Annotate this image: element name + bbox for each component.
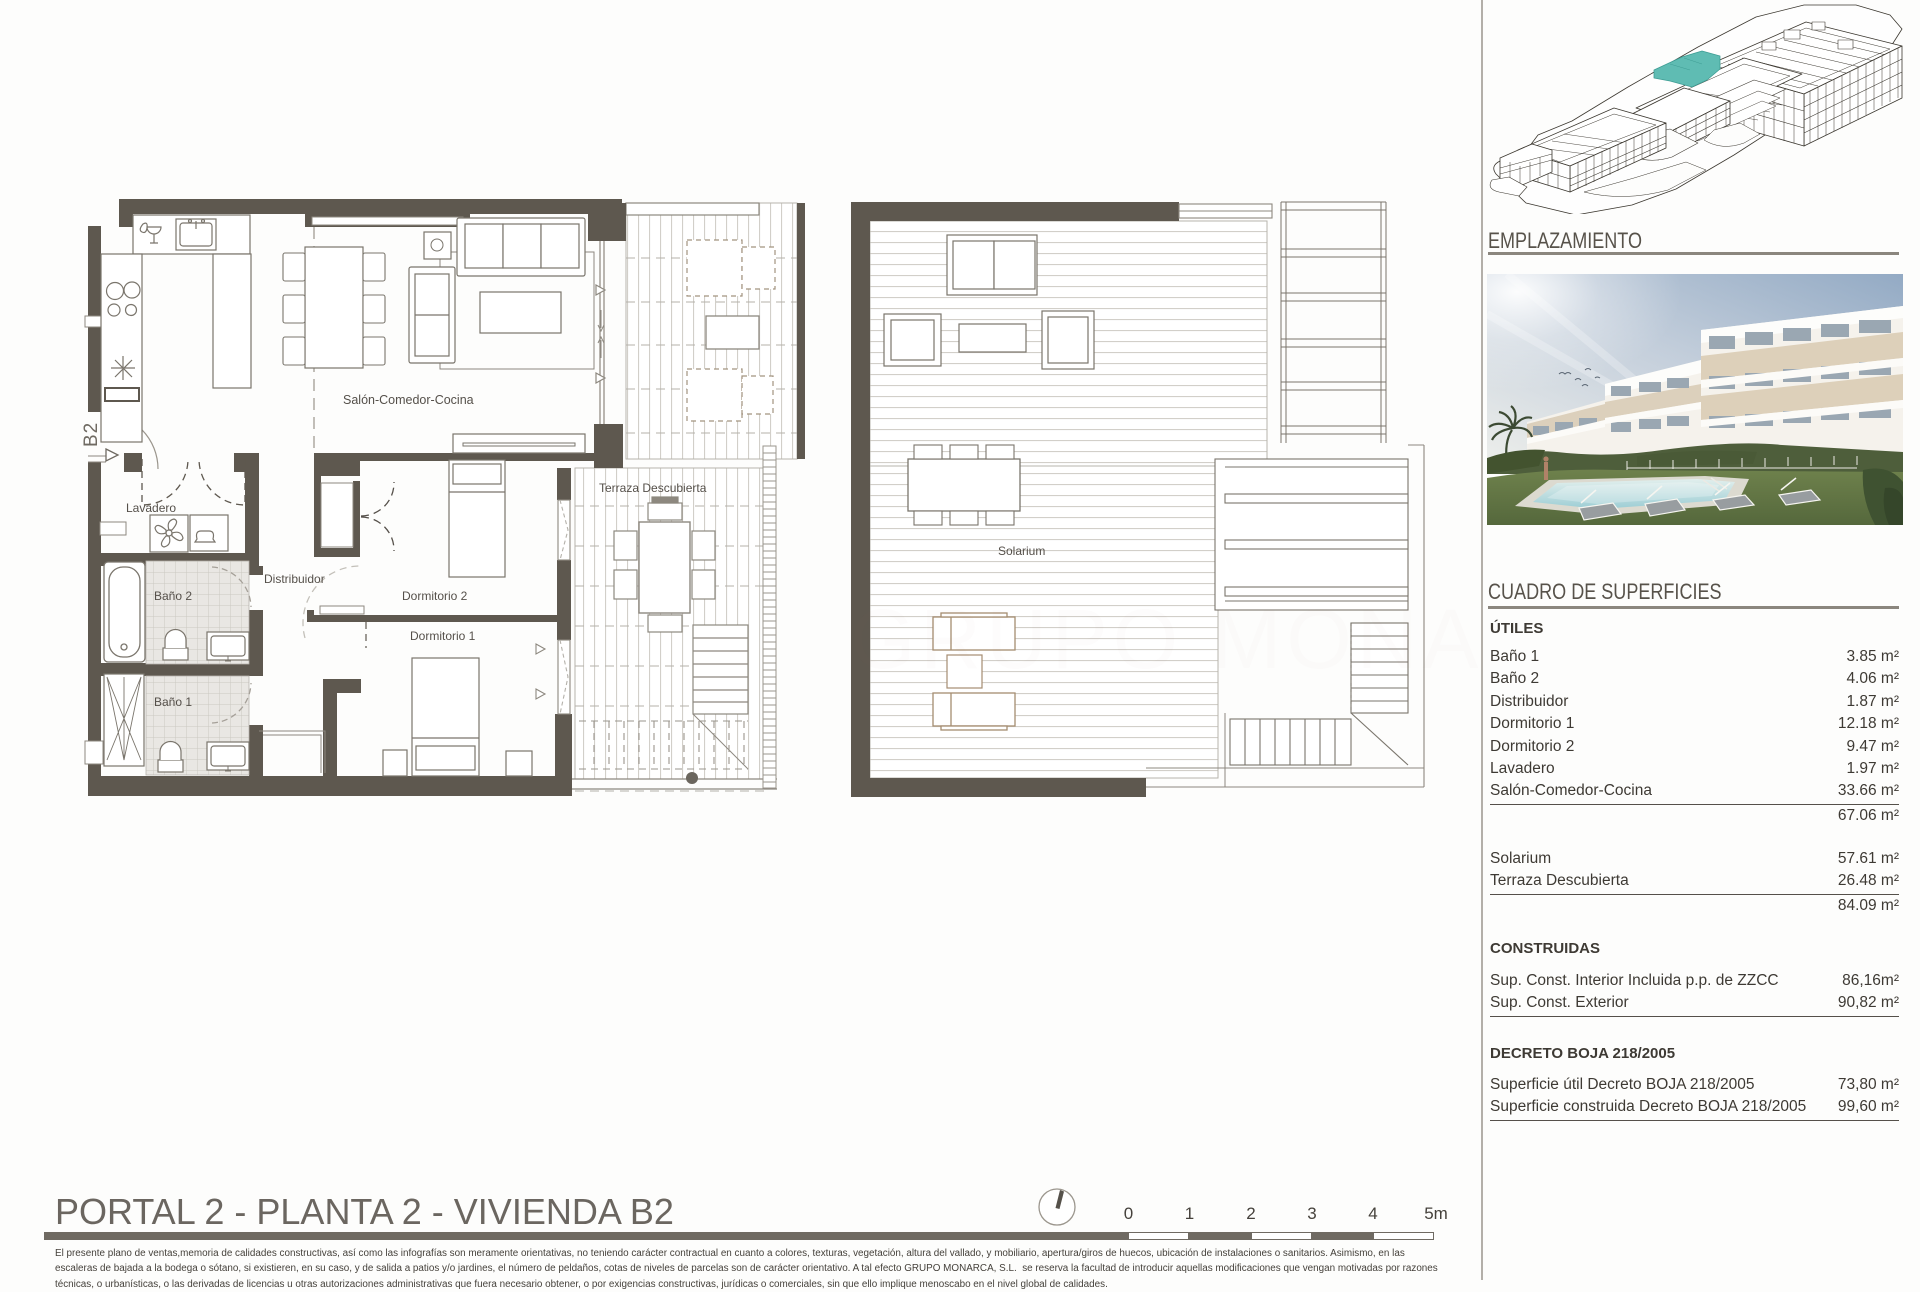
svg-text:Baño 1: Baño 1	[154, 695, 192, 709]
svg-text:Baño 2: Baño 2	[154, 589, 192, 603]
svg-text:Salón-Comedor-Cocina: Salón-Comedor-Cocina	[343, 393, 474, 407]
svg-text:Terraza Descubierta: Terraza Descubierta	[599, 481, 707, 495]
svg-text:Dormitorio 1: Dormitorio 1	[410, 629, 476, 643]
svg-text:Solarium: Solarium	[998, 544, 1045, 558]
svg-text:B2: B2	[81, 422, 102, 447]
svg-text:GRUPO MONARCA: GRUPO MONARCA	[850, 592, 1480, 686]
svg-text:Lavadero: Lavadero	[126, 501, 176, 515]
svg-text:Dormitorio 2: Dormitorio 2	[402, 589, 468, 603]
svg-text:Distribuidor: Distribuidor	[264, 572, 325, 586]
